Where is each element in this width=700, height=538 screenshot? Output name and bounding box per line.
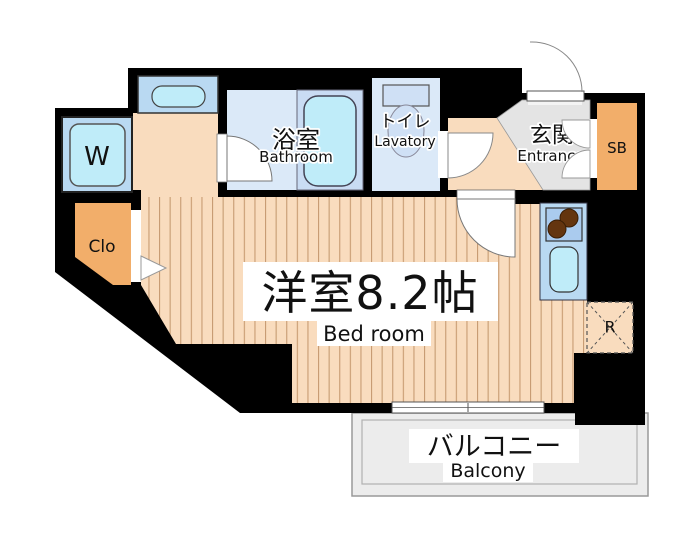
- floor-plan-page: バルコニー Balcony Clo W 浴室 Bathroom: [0, 0, 700, 538]
- washer-label: W: [84, 142, 110, 172]
- washing-machine-space: W: [62, 117, 132, 192]
- wall-patch-kitchen-top: [515, 190, 587, 204]
- lavatory-doorway: [438, 131, 448, 178]
- washbasin: [138, 76, 218, 113]
- lavatory-label-en: Lavatory: [374, 134, 435, 150]
- kitchen-sink-icon: [550, 247, 578, 292]
- bathroom-door-leaf: [217, 134, 227, 182]
- entrance-door-swing: [530, 42, 582, 92]
- refrigerator-label: R: [604, 318, 615, 337]
- balcony-label-jp: バルコニー: [427, 432, 561, 463]
- toilet-tank-icon: [383, 85, 429, 106]
- refrigerator-space: R: [587, 302, 633, 353]
- bedroom-door-leaf: [457, 190, 515, 199]
- balcony-window: [392, 402, 544, 413]
- washbasin-sink-icon: [152, 86, 205, 107]
- bedroom-label-jp: 洋室8.2帖: [261, 266, 478, 320]
- closet-doorway: [131, 210, 141, 282]
- lavatory-label-jp: トイレ: [380, 112, 431, 132]
- stove-burner-icon: [548, 220, 566, 238]
- bathroom: 浴室 Bathroom: [217, 90, 363, 190]
- balcony: バルコニー Balcony: [352, 413, 648, 496]
- bedroom-label-en: Bed room: [323, 322, 425, 346]
- entrance-door-leaf: [527, 91, 584, 101]
- bathroom-label-en: Bathroom: [259, 148, 333, 166]
- closet-label: Clo: [89, 237, 116, 257]
- washroom-floor: [133, 113, 218, 198]
- kitchen: [540, 203, 587, 300]
- shoebox-label: SB: [607, 139, 627, 157]
- floor-plan-canvas: バルコニー Balcony Clo W 浴室 Bathroom: [0, 0, 700, 538]
- balcony-label-en: Balcony: [450, 460, 525, 482]
